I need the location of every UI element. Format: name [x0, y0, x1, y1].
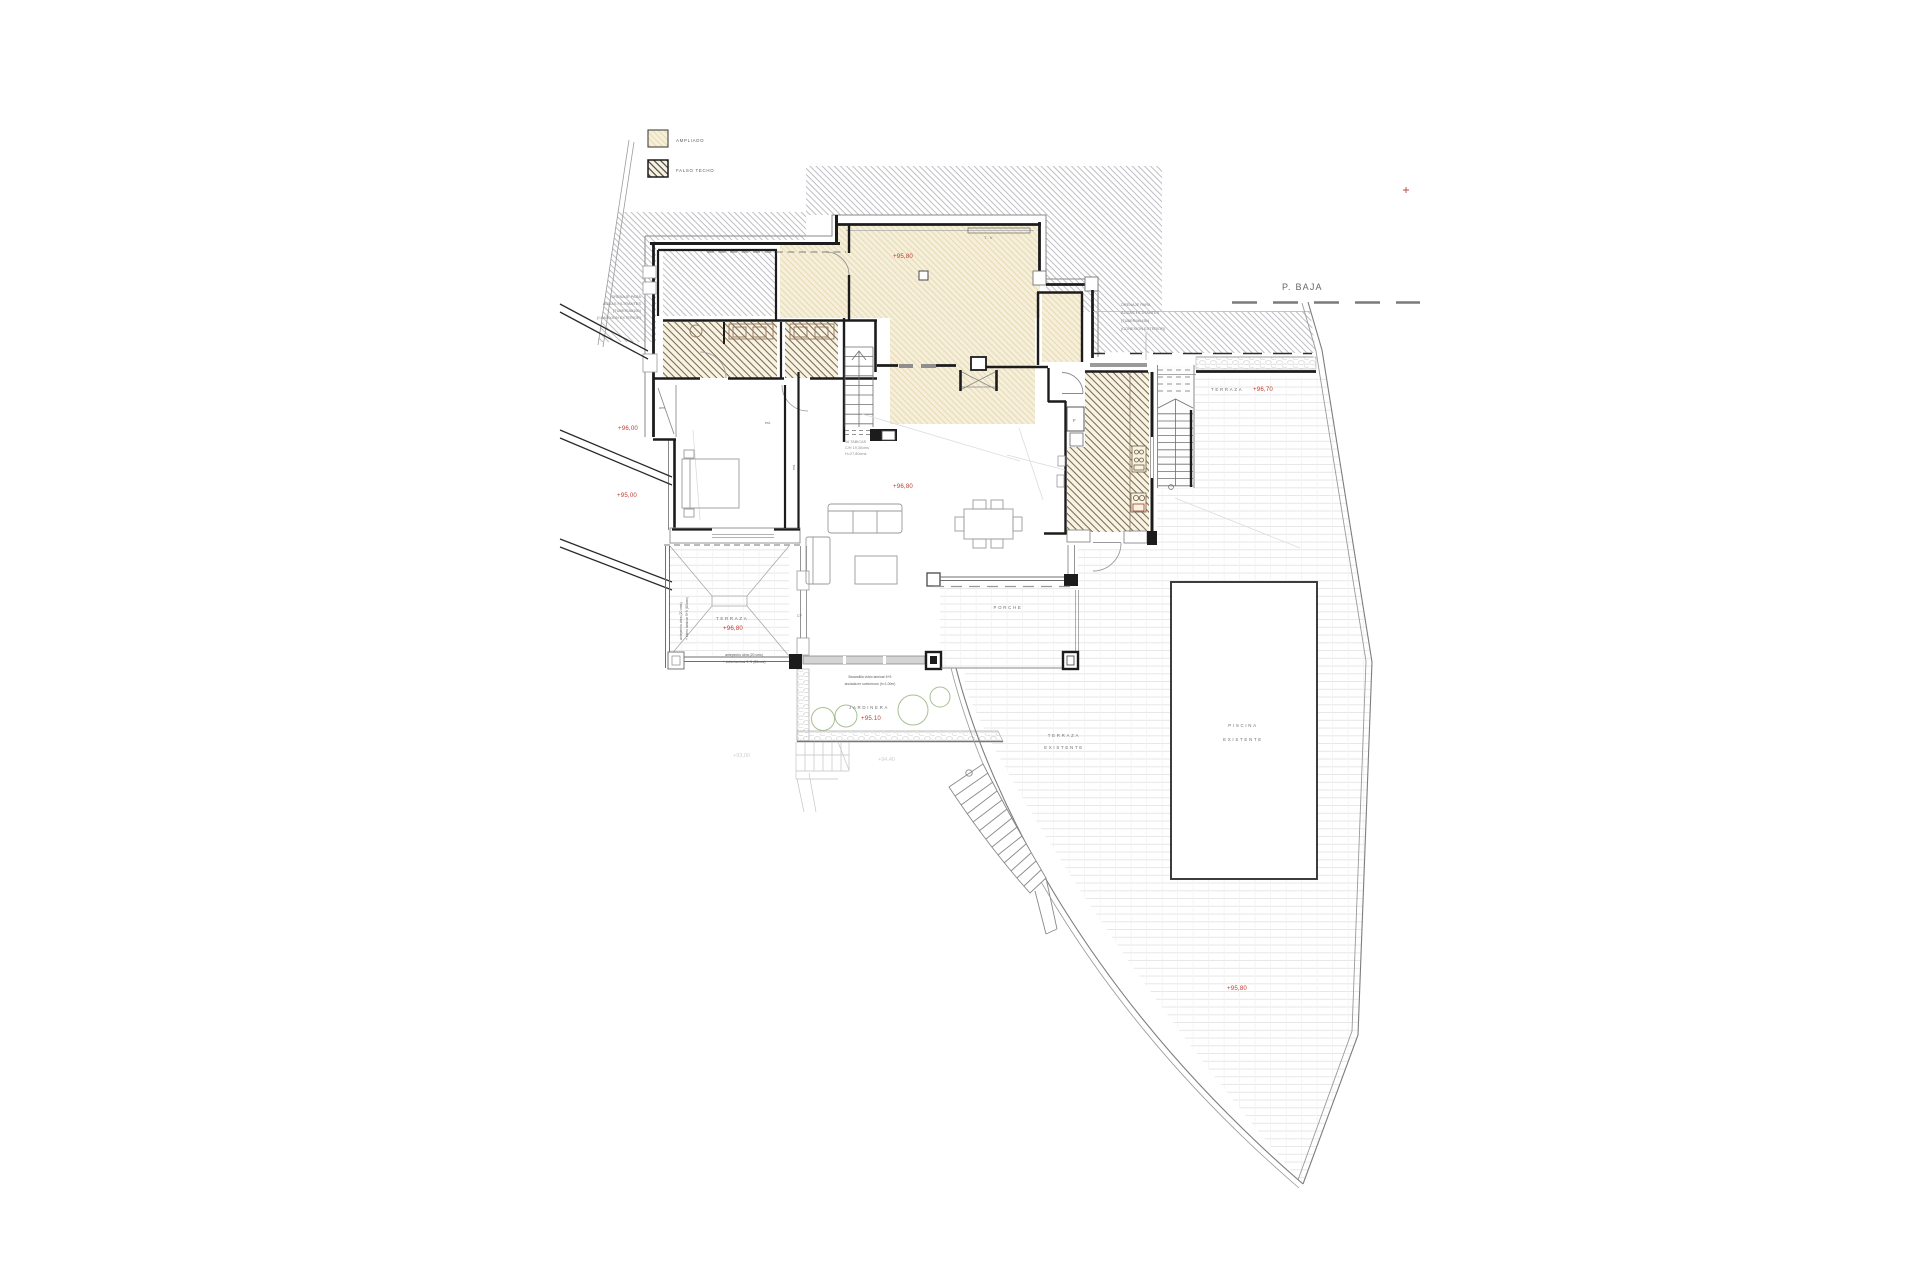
svg-text:est.: est.	[765, 421, 771, 425]
svg-text:+93,00: +93,00	[733, 753, 750, 759]
svg-text:PORCHE: PORCHE	[994, 605, 1023, 610]
svg-text:DRENAJE PARA: DRENAJE PARA	[1121, 302, 1151, 307]
svg-text:TERRAZA: TERRAZA	[1211, 387, 1243, 392]
svg-text:TERRAZA: TERRAZA	[716, 616, 748, 621]
svg-text:est.: est.	[792, 464, 796, 470]
svg-text:(CONEXION EXTERIOR): (CONEXION EXTERIOR)	[597, 315, 642, 320]
svg-text:PISCINA: PISCINA	[1228, 723, 1257, 728]
svg-text:P. BAJA: P. BAJA	[1282, 282, 1323, 292]
svg-text:16 TABICAS: 16 TABICAS	[845, 440, 867, 444]
svg-text:AGUAS FILTRANTES: AGUAS FILTRANTES	[1121, 310, 1160, 315]
svg-text:+95,00: +95,00	[617, 492, 637, 499]
svg-text:antepecho obra (20 cms): antepecho obra (20 cms)	[679, 602, 683, 640]
svg-text:+94,40: +94,40	[878, 757, 895, 763]
svg-text:+96,00: +96,00	[618, 425, 638, 432]
svg-text:(CONEXION EXTERIOR): (CONEXION EXTERIOR)	[1121, 326, 1166, 331]
svg-text:DRENAJE PARA: DRENAJE PARA	[611, 294, 641, 299]
svg-text:+ vidrio laminar 5+5 (80cms): + vidrio laminar 5+5 (80cms)	[685, 597, 689, 640]
svg-text:arm.: arm.	[659, 406, 666, 410]
svg-text:(TUBERIA#150): (TUBERIA#150)	[1121, 318, 1150, 323]
svg-text:T . V: T . V	[984, 235, 993, 240]
svg-text:(TUBERIA#150): (TUBERIA#150)	[613, 308, 642, 313]
svg-text:+95,80: +95,80	[1227, 985, 1247, 992]
svg-text:JARDINERA: JARDINERA	[849, 705, 889, 710]
svg-text:EXISTENTE: EXISTENTE	[1044, 745, 1084, 750]
svg-text:antepecho obra (20 cms): antepecho obra (20 cms)	[725, 653, 763, 657]
svg-text:TERRAZA: TERRAZA	[1048, 733, 1080, 738]
svg-text:+96,70: +96,70	[1253, 386, 1273, 393]
svg-text:+96,80: +96,80	[723, 625, 743, 632]
svg-text:AGUAS FILTRANTES: AGUAS FILTRANTES	[603, 301, 642, 306]
svg-text:Barandilla vidrio laminar 5+5: Barandilla vidrio laminar 5+5	[849, 675, 892, 679]
svg-text:+96,80: +96,80	[893, 483, 913, 490]
svg-text:+95.10: +95.10	[861, 715, 881, 722]
svg-text:+95,80: +95,80	[893, 253, 913, 260]
svg-text:EXISTENTE: EXISTENTE	[1223, 737, 1263, 742]
svg-text:+ vidrio laminar 5+5 (80cms): + vidrio laminar 5+5 (80cms)	[723, 660, 766, 664]
svg-text:C/H 19,30cms: C/H 19,30cms	[845, 446, 869, 450]
svg-text:H=27,80cms: H=27,80cms	[845, 452, 867, 456]
svg-text:anclada en suelo/muro (h=1.00m: anclada en suelo/muro (h=1.00m)	[845, 682, 896, 686]
svg-text:AMPLIADO: AMPLIADO	[676, 138, 704, 143]
svg-text:F: F	[1073, 418, 1076, 423]
svg-text:FALSO TECHO: FALSO TECHO	[676, 168, 714, 173]
svg-text:CF: CF	[797, 614, 803, 618]
